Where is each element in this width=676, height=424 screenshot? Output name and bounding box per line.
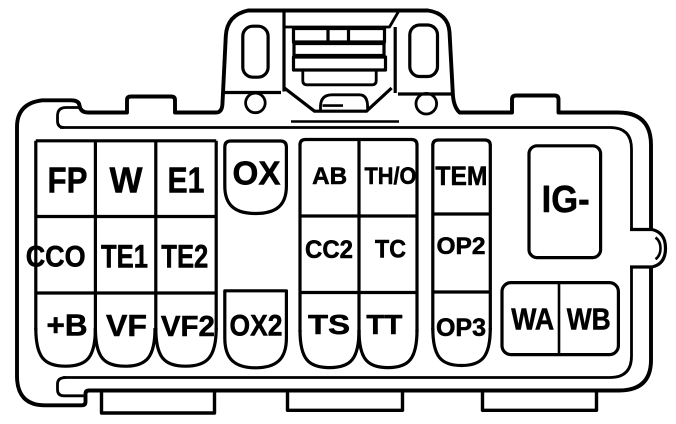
- svg-text:FP: FP: [48, 160, 88, 201]
- svg-text:TT: TT: [366, 309, 402, 340]
- svg-text:CCO: CCO: [26, 241, 86, 274]
- svg-text:W: W: [110, 160, 143, 201]
- svg-text:+B: +B: [47, 308, 88, 343]
- svg-text:TE1: TE1: [101, 238, 148, 274]
- svg-text:WA: WA: [511, 302, 554, 337]
- svg-text:TS: TS: [308, 309, 350, 340]
- svg-text:OX2: OX2: [230, 310, 283, 343]
- svg-text:VF: VF: [106, 308, 147, 343]
- svg-text:CC2: CC2: [305, 236, 353, 264]
- svg-text:AB: AB: [312, 163, 347, 190]
- svg-text:OP2: OP2: [437, 233, 486, 260]
- svg-text:IG-: IG-: [542, 179, 590, 221]
- svg-text:WB: WB: [567, 302, 611, 337]
- svg-text:OP3: OP3: [436, 314, 486, 342]
- svg-text:VF2: VF2: [161, 311, 215, 343]
- svg-text:TC: TC: [375, 236, 406, 264]
- svg-text:E1: E1: [168, 160, 205, 201]
- svg-text:TE2: TE2: [161, 238, 208, 274]
- svg-text:OX: OX: [233, 154, 281, 191]
- svg-text:TH/O: TH/O: [365, 163, 417, 190]
- svg-text:TEM: TEM: [435, 161, 487, 191]
